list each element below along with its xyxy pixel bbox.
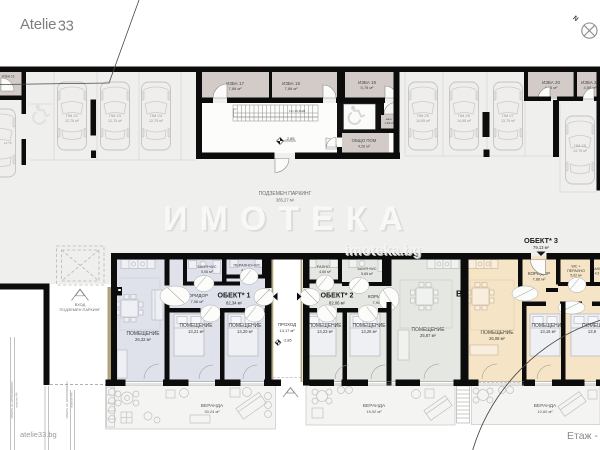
svg-text:ПМ 24: ПМ 24: [150, 113, 163, 118]
svg-text:82,34 м²: 82,34 м²: [226, 301, 243, 306]
svg-text:12,75 м²: 12,75 м²: [149, 119, 164, 123]
svg-text:26,32 м²: 26,32 м²: [135, 337, 152, 342]
svg-text:ОБЕКТ* 2: ОБЕКТ* 2: [321, 291, 354, 300]
svg-text:13,26 м²: 13,26 м²: [361, 329, 378, 334]
svg-text:наклон 4%: наклон 4%: [70, 392, 74, 407]
svg-text:4,5: 4,5: [595, 272, 600, 276]
svg-text:7,86 м²: 7,86 м²: [229, 86, 243, 91]
svg-text:ОБЕКТ* 3: ОБЕКТ* 3: [524, 236, 558, 245]
svg-text:БАНЯ+WC: БАНЯ+WC: [358, 267, 377, 271]
svg-text:-2,85: -2,85: [286, 136, 296, 141]
svg-text:30,24 м²: 30,24 м²: [204, 409, 220, 414]
svg-text:14,95 м²: 14,95 м²: [416, 119, 431, 123]
svg-text:13,75 м²: 13,75 м²: [501, 119, 516, 123]
svg-text:82,06 м²: 82,06 м²: [329, 301, 346, 306]
svg-text:13,9: 13,9: [588, 329, 597, 334]
svg-text:17x 16,3x28: 17x 16,3x28: [289, 109, 306, 113]
svg-text:13,16 м²: 13,16 м²: [540, 329, 557, 334]
svg-text:N: N: [571, 15, 579, 24]
svg-text:РАМПА ЗА АВТОМОБИЛИ: РАМПА ЗА АВТОМОБИЛИ: [65, 382, 69, 419]
svg-text:ПЕРАЛНО+WC: ПЕРАЛНО+WC: [234, 264, 261, 268]
svg-text:ПМ 22: ПМ 22: [66, 113, 79, 118]
svg-text:-2,85: -2,85: [283, 339, 292, 343]
svg-text:13,20 м²: 13,20 м²: [237, 329, 254, 334]
svg-text:atelie33.bg: atelie33.bg: [20, 430, 57, 439]
svg-text:БАНЯ+WC: БАНЯ+WC: [198, 265, 217, 269]
svg-text:ПМ 26: ПМ 26: [458, 113, 471, 118]
svg-text:РАМПА ЗА АВТОМОБИЛИ: РАМПА ЗА АВТОМОБИЛИ: [10, 382, 14, 419]
svg-text:imoteka.bg: imoteka.bg: [345, 243, 422, 259]
svg-text:7,86 м²: 7,86 м²: [285, 86, 299, 91]
svg-text:7,06 м²: 7,06 м²: [191, 299, 205, 304]
svg-text:5,06 м²: 5,06 м²: [201, 270, 213, 274]
svg-text:ОБЕКТ* 1: ОБЕКТ* 1: [218, 291, 251, 300]
svg-text:WC +: WC +: [571, 265, 580, 269]
svg-text:1,99 м²: 1,99 м²: [384, 121, 393, 125]
svg-text:ПОДЗЕМЕН ПАРКИНГ: ПОДЗЕМЕН ПАРКИНГ: [259, 191, 312, 197]
svg-text:ОБЩО ПОМ: ОБЩО ПОМ: [352, 138, 377, 143]
svg-text:5,02 м²: 5,02 м²: [570, 274, 582, 278]
svg-text:13,21 м²: 13,21 м²: [188, 329, 205, 334]
svg-text:10,60 м²: 10,60 м²: [537, 409, 553, 414]
svg-text:19,92 м²: 19,92 м²: [366, 409, 382, 414]
svg-text:14,95 м²: 14,95 м²: [457, 119, 472, 123]
svg-text:Atelie33: Atelie33: [20, 16, 74, 35]
svg-text:ВВ: ВВ: [456, 289, 468, 299]
svg-text:14,17 м²: 14,17 м²: [279, 328, 295, 333]
svg-text:ПМ 28: ПМ 28: [574, 143, 587, 148]
svg-text:ПМ 25: ПМ 25: [417, 113, 430, 118]
svg-text:25,87 м²: 25,87 м²: [420, 333, 437, 338]
svg-text:ПМ 23: ПМ 23: [109, 113, 122, 118]
svg-text:26,08 м²: 26,08 м²: [489, 336, 506, 341]
svg-text:12,75: 12,75: [4, 141, 12, 145]
svg-text:12,75 м²: 12,75 м²: [65, 119, 80, 123]
svg-text:79,13 м²: 79,13 м²: [533, 245, 550, 250]
svg-text:7,66 м²: 7,66 м²: [533, 277, 547, 282]
svg-text:ИМОТЕКА: ИМОТЕКА: [163, 200, 415, 238]
svg-text:12,75 м²: 12,75 м²: [108, 119, 123, 123]
svg-text:ПМ 27: ПМ 27: [502, 113, 515, 118]
svg-text:ПЕРАЛНО: ПЕРАЛНО: [567, 269, 585, 273]
svg-text:ИЗБА 16: ИЗБА 16: [2, 75, 15, 79]
svg-text:13,75 м²: 13,75 м²: [573, 149, 588, 153]
svg-text:ПОДЗЕМЕН ПАРКИНГ: ПОДЗЕМЕН ПАРКИНГ: [59, 307, 101, 312]
svg-text:Етаж - 1: Етаж - 1: [567, 430, 600, 442]
svg-text:ПРОХОД: ПРОХОД: [278, 322, 296, 327]
svg-text:5,78 м²: 5,78 м²: [361, 85, 375, 90]
svg-text:4,60 м²: 4,60 м²: [319, 270, 331, 274]
svg-text:наклон 4%: наклон 4%: [15, 392, 19, 407]
svg-text:13,23 м²: 13,23 м²: [317, 329, 334, 334]
svg-text:4,26 м²: 4,26 м²: [358, 145, 371, 149]
svg-text:5,65 м²: 5,65 м²: [361, 272, 373, 276]
